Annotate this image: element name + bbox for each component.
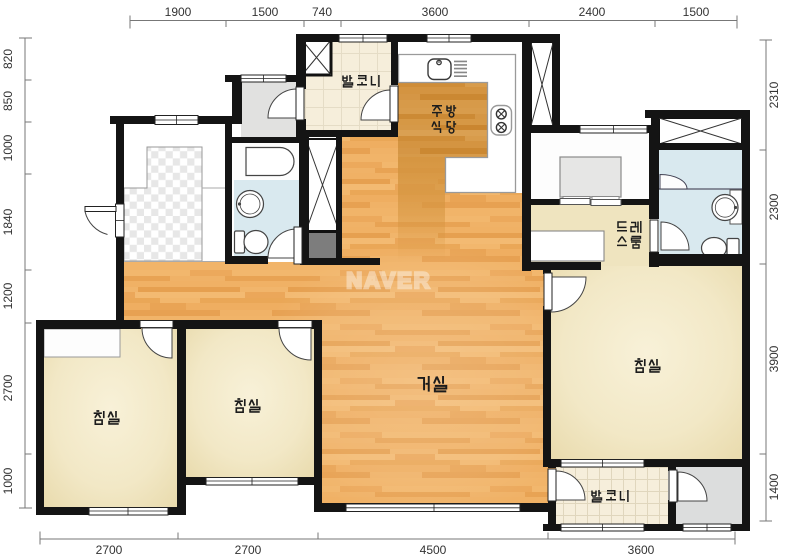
svg-text:NAVER: NAVER [346,268,431,293]
svg-text:3600: 3600 [628,543,655,557]
svg-text:850: 850 [1,91,15,111]
svg-text:2700: 2700 [235,543,262,557]
svg-text:820: 820 [1,49,15,69]
svg-text:1200: 1200 [1,282,15,309]
svg-text:2700: 2700 [1,374,15,401]
svg-text:740: 740 [312,5,332,19]
svg-text:1500: 1500 [252,5,279,19]
svg-text:2400: 2400 [579,5,606,19]
svg-text:1900: 1900 [165,5,192,19]
svg-text:2310: 2310 [767,81,781,108]
svg-text:2700: 2700 [96,543,123,557]
svg-text:1000: 1000 [1,134,15,161]
svg-text:4500: 4500 [420,543,447,557]
svg-text:1840: 1840 [1,208,15,235]
svg-text:1400: 1400 [767,473,781,500]
svg-text:3600: 3600 [422,5,449,19]
svg-text:1500: 1500 [683,5,710,19]
svg-text:3900: 3900 [767,345,781,372]
svg-text:1000: 1000 [1,467,15,494]
svg-text:2300: 2300 [767,193,781,220]
